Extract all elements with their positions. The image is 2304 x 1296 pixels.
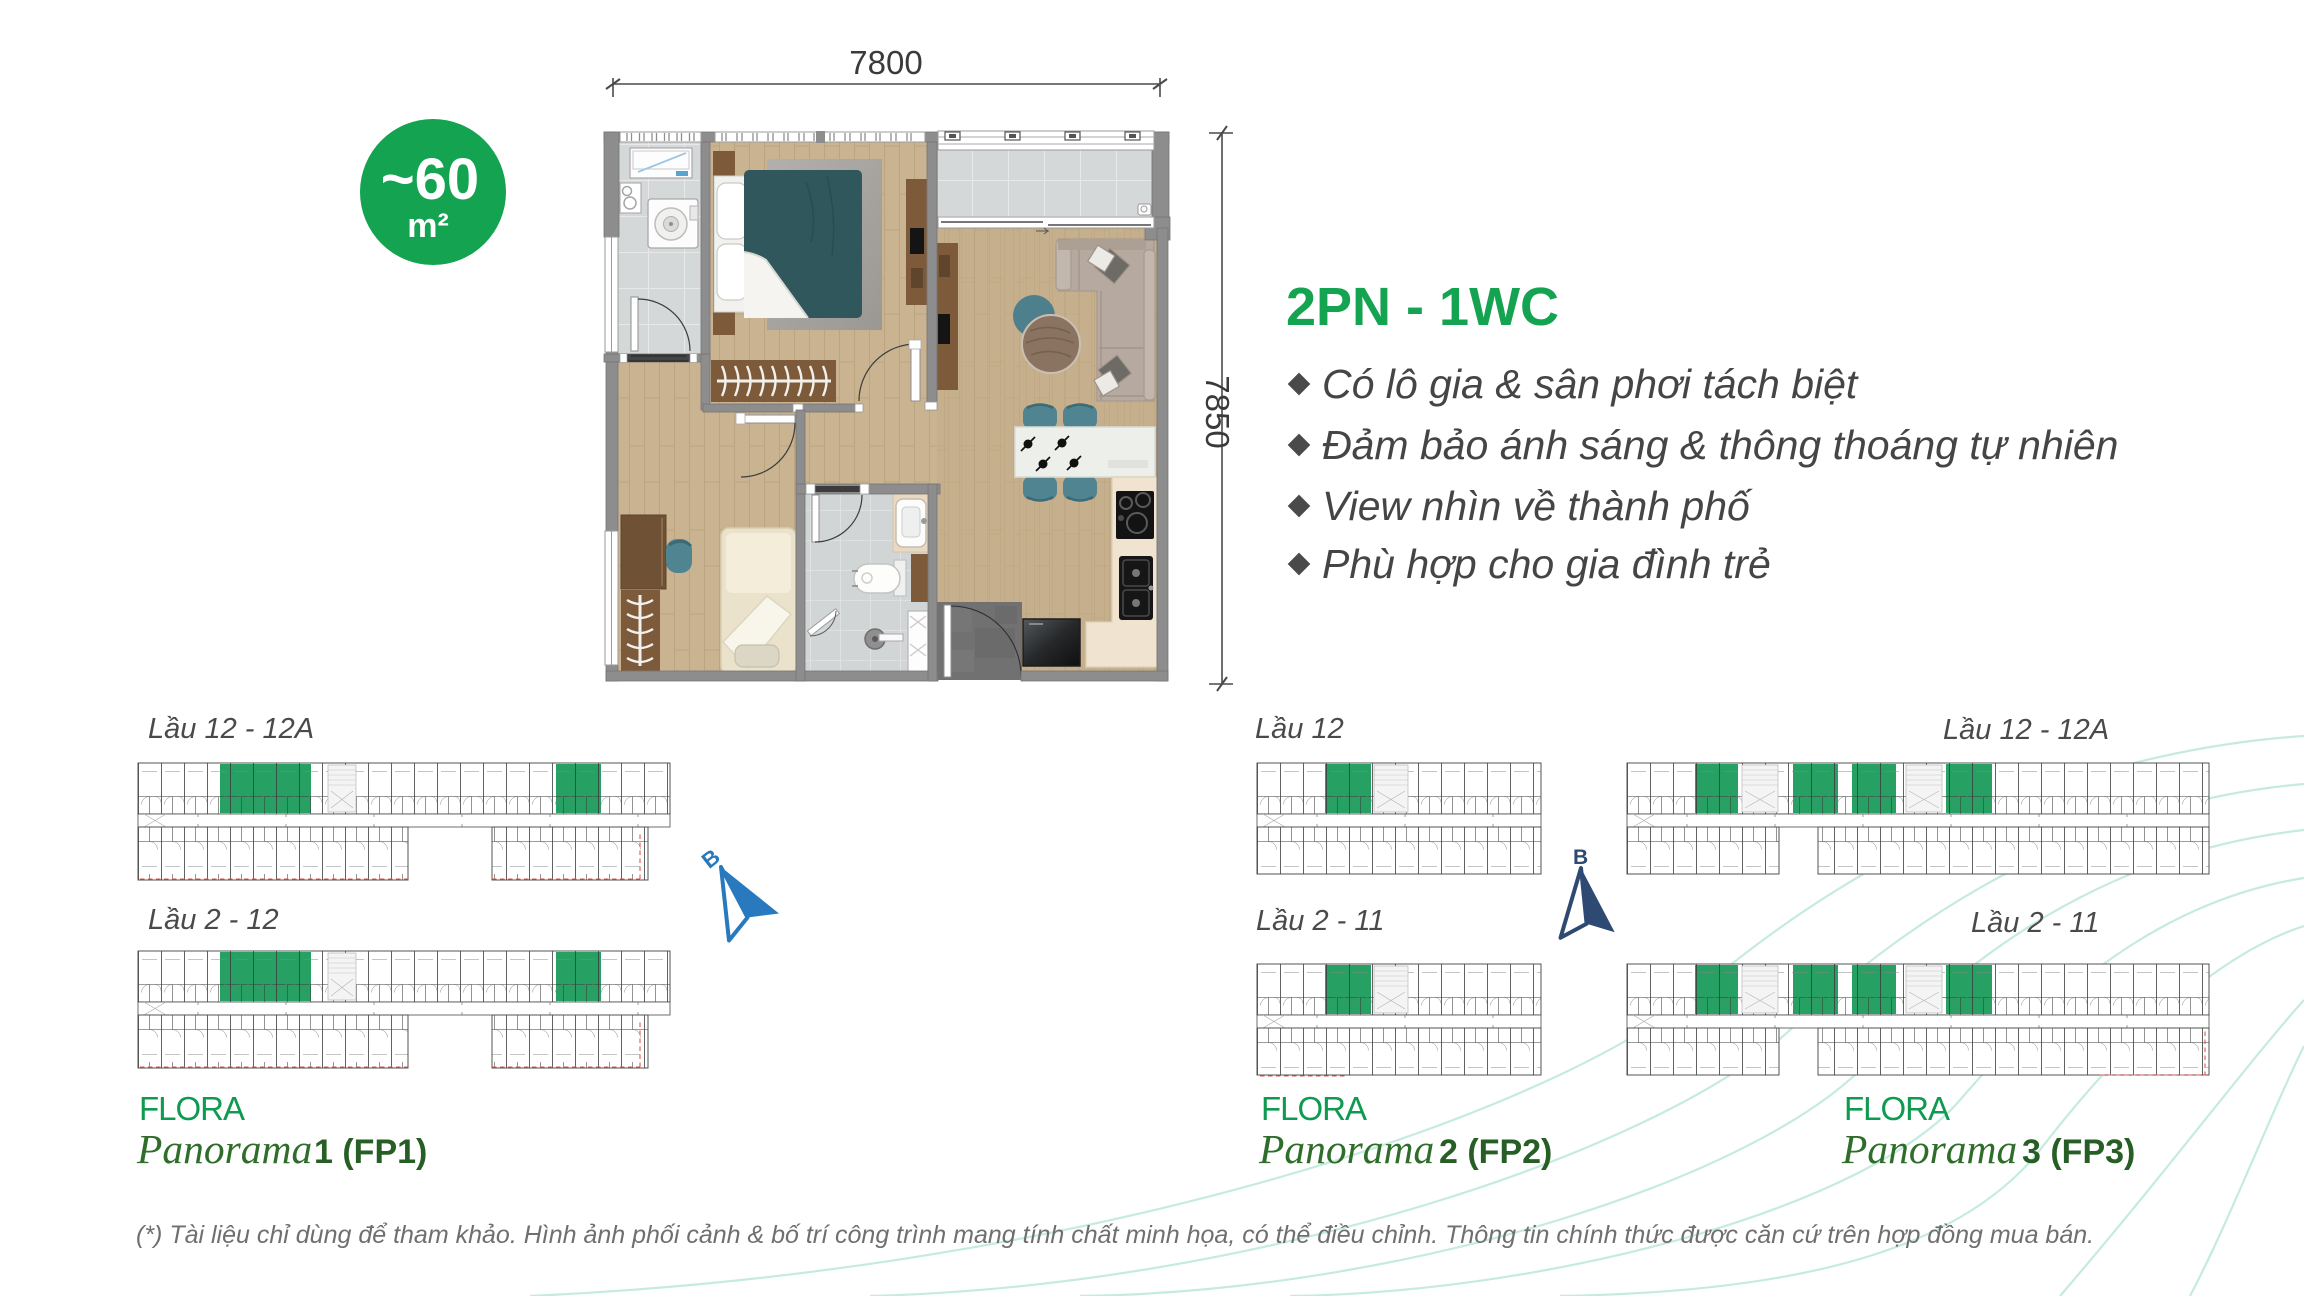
svg-text:FLORA: FLORA	[1844, 1090, 1950, 1127]
svg-text:1 (FP1): 1 (FP1)	[314, 1133, 427, 1171]
svg-text:Lầu 12 - 12A: Lầu 12 - 12A	[1943, 714, 2109, 746]
svg-text:Lầu 2 - 11: Lầu 2 - 11	[1971, 907, 2099, 939]
svg-text:3 (FP3): 3 (FP3)	[2022, 1133, 2135, 1171]
svg-text:7850: 7850	[1199, 375, 1236, 448]
svg-text:Panorama: Panorama	[136, 1126, 312, 1172]
svg-text:m²: m²	[407, 207, 449, 245]
svg-text:~60: ~60	[381, 147, 479, 212]
svg-text:Panorama: Panorama	[1258, 1126, 1434, 1172]
svg-text:Lầu 2 - 12: Lầu 2 - 12	[148, 904, 279, 936]
svg-text:FLORA: FLORA	[1261, 1090, 1367, 1127]
svg-text:Lầu 2 - 11: Lầu 2 - 11	[1256, 905, 1384, 937]
svg-text:View nhìn về thành phố: View nhìn về thành phố	[1322, 483, 1753, 529]
svg-text:(*) Tài liệu chỉ dùng để tham: (*) Tài liệu chỉ dùng để tham khảo. Hình…	[136, 1221, 2094, 1249]
svg-text:2 (FP2): 2 (FP2)	[1439, 1133, 1552, 1171]
svg-text:Đảm bảo ánh sáng & thông thoán: Đảm bảo ánh sáng & thông thoáng tự nhiên	[1322, 422, 2118, 468]
svg-text:Panorama: Panorama	[1841, 1126, 2017, 1172]
svg-text:Lầu 12: Lầu 12	[1255, 713, 1344, 745]
svg-text:7800: 7800	[849, 44, 922, 81]
svg-text:Phù hợp cho gia đình trẻ: Phù hợp cho gia đình trẻ	[1322, 541, 1771, 587]
svg-text:B: B	[1573, 846, 1588, 869]
svg-text:Có lô gia & sân phơi tách biệt: Có lô gia & sân phơi tách biệt	[1322, 361, 1859, 407]
svg-text:FLORA: FLORA	[139, 1090, 245, 1127]
svg-text:Lầu 12 - 12A: Lầu 12 - 12A	[148, 713, 314, 745]
svg-text:2PN - 1WC: 2PN - 1WC	[1286, 277, 1559, 337]
